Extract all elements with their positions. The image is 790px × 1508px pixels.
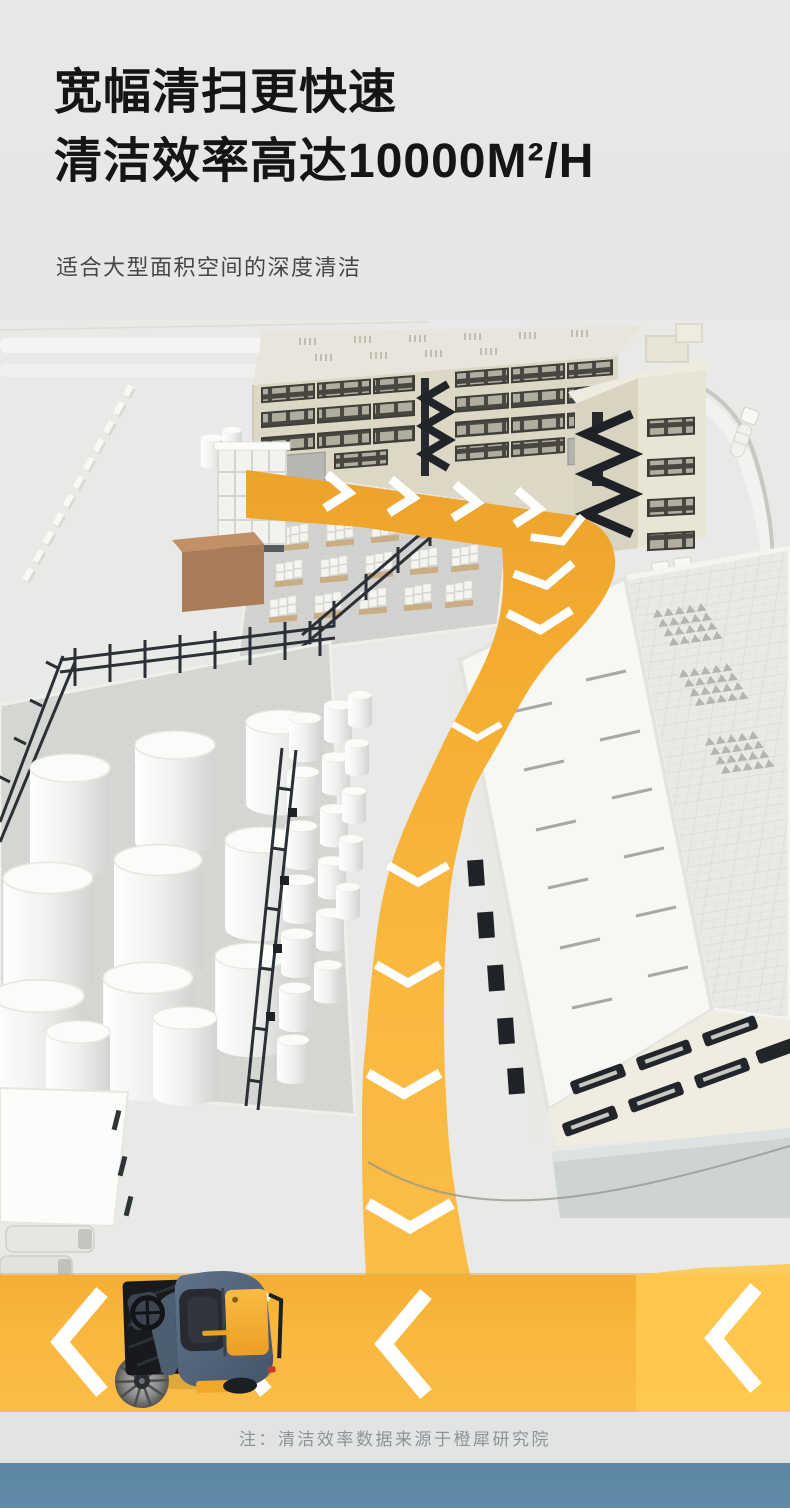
note-text: 注：清洁效率数据来源于橙犀研究院 [239, 1425, 551, 1450]
subtitle: 适合大型面积空间的深度清洁 [56, 250, 362, 282]
factory-scene [0, 320, 790, 1412]
brand-decal [202, 1330, 230, 1336]
note-strip: 注：清洁效率数据来源于橙犀研究院 [0, 1412, 790, 1463]
tank-farm [0, 618, 372, 1123]
title-line-2: 清洁效率高达10000M²/H [54, 127, 594, 196]
engine-cover [225, 1289, 269, 1356]
page-title: 宽幅清扫更快速 清洁效率高达10000M²/H [54, 58, 594, 196]
bottom-band [0, 1463, 790, 1508]
brown-warehouse [172, 532, 264, 612]
rooftop-unit [676, 324, 702, 342]
title-line-1: 宽幅清扫更快速 [54, 58, 594, 127]
product-banner: 宽幅清扫更快速 清洁效率高达10000M²/H 适合大型面积空间的深度清洁 [0, 0, 790, 1508]
tail-light [267, 1366, 275, 1372]
steering-wheel [132, 1297, 163, 1328]
